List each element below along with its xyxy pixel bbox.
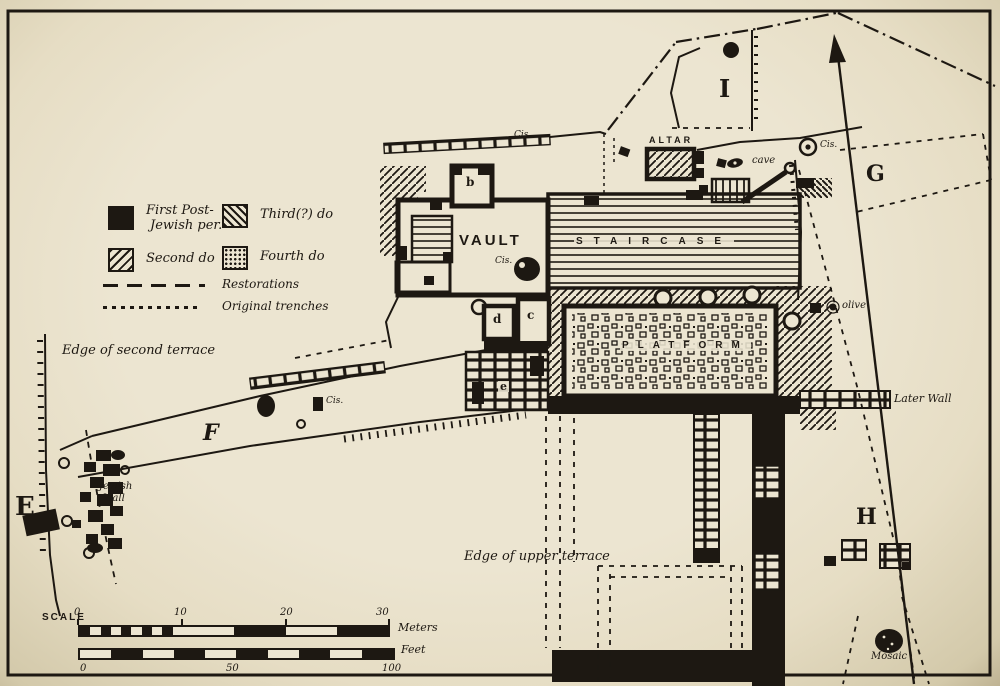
legend-restorations-line-sample	[103, 284, 205, 287]
legend-swatch-fourth-period	[222, 246, 248, 270]
rooms-c-d-e	[466, 299, 549, 410]
scale-bar-feet	[78, 648, 395, 660]
legend-label-second: Second do	[146, 252, 215, 265]
scale-bar-meters	[78, 625, 390, 637]
jewish-wall-label-line1: Jewish	[99, 482, 132, 492]
legend-label-trenches: Original trenches	[222, 300, 329, 312]
grill-structure	[712, 179, 749, 202]
cistern-label-circle: Cis.	[820, 141, 837, 150]
meters-unit-label: Meters	[398, 622, 438, 633]
legend-swatch-second-period	[108, 248, 134, 272]
staircase-label: STAIRCASE	[574, 237, 734, 247]
olive-tree-mark	[830, 304, 837, 311]
jewish-wall-rubble	[22, 430, 129, 584]
legend-label-first-line1: First Post-	[146, 204, 214, 217]
platform-structure	[548, 306, 776, 396]
pit-mark	[723, 42, 739, 58]
trench-i-region	[671, 30, 756, 131]
edge-upper-terrace-label: Edge of upper terrace	[464, 550, 610, 563]
legend-label-restorations: Restorations	[222, 278, 299, 290]
trench-letter-i: I	[719, 77, 730, 101]
column-base	[744, 287, 760, 303]
room-letter-b: b	[466, 176, 474, 188]
cistern-label-top: Cis.	[514, 131, 531, 140]
meters-tick-10: 10	[174, 608, 187, 618]
edge-second-terrace-label: Edge of second terrace	[62, 344, 215, 357]
meters-tick-mark	[388, 619, 390, 625]
altar-label: ALTAR	[649, 136, 693, 145]
meters-tick-mark	[77, 619, 79, 625]
vault-cistern	[514, 257, 540, 281]
north-arrow-head	[829, 34, 846, 63]
cave-icon	[716, 158, 727, 168]
feet-tick-100: 100	[382, 664, 401, 674]
legend-label-fourth: Fourth do	[260, 250, 325, 263]
trench-letter-h: H	[856, 506, 877, 528]
later-wall	[800, 391, 890, 408]
platform-label: PLATFORM	[620, 341, 751, 351]
feet-tick-0: 0	[80, 664, 86, 674]
feet-tick-50: 50	[226, 664, 239, 674]
trench-letter-g: G	[866, 163, 885, 185]
meters-tick-0: 0	[74, 608, 80, 618]
legend-label-first-line2: Jewish per.	[150, 219, 222, 232]
column-base	[700, 289, 716, 305]
cistern-label-road: Cis.	[326, 397, 343, 406]
legend-swatch-third-period	[222, 204, 248, 228]
cistern-label-vault: Cis.	[495, 257, 512, 266]
meters-tick-mark	[285, 619, 287, 625]
room-letter-e: e	[498, 381, 509, 392]
mosaic-patch	[875, 629, 903, 653]
trench-letter-e: E	[15, 494, 35, 520]
cave-label: cave	[752, 156, 775, 166]
mosaic-label: Mosaic	[871, 652, 907, 662]
south-walls	[548, 391, 890, 686]
meters-tick-mark	[181, 619, 183, 625]
room-letter-c: c	[527, 309, 534, 321]
legend-trenches-line-sample	[103, 306, 201, 309]
restoration-dashdot-lines	[608, 13, 995, 130]
jewish-wall-label-line2: Wall	[103, 494, 125, 504]
road-features	[257, 395, 323, 428]
legend-label-third: Third(?) do	[260, 208, 333, 221]
olive-label: olive	[842, 301, 866, 311]
later-wall-label: Later Wall	[894, 393, 952, 404]
meters-tick-20: 20	[280, 608, 293, 618]
room-letter-d: d	[493, 313, 501, 325]
trench-letter-f: F	[203, 422, 219, 444]
meters-tick-30: 30	[376, 608, 389, 618]
feet-unit-label: Feet	[401, 644, 425, 655]
legend-swatch-first-period	[108, 206, 134, 230]
vault-label: VAULT	[459, 233, 522, 248]
